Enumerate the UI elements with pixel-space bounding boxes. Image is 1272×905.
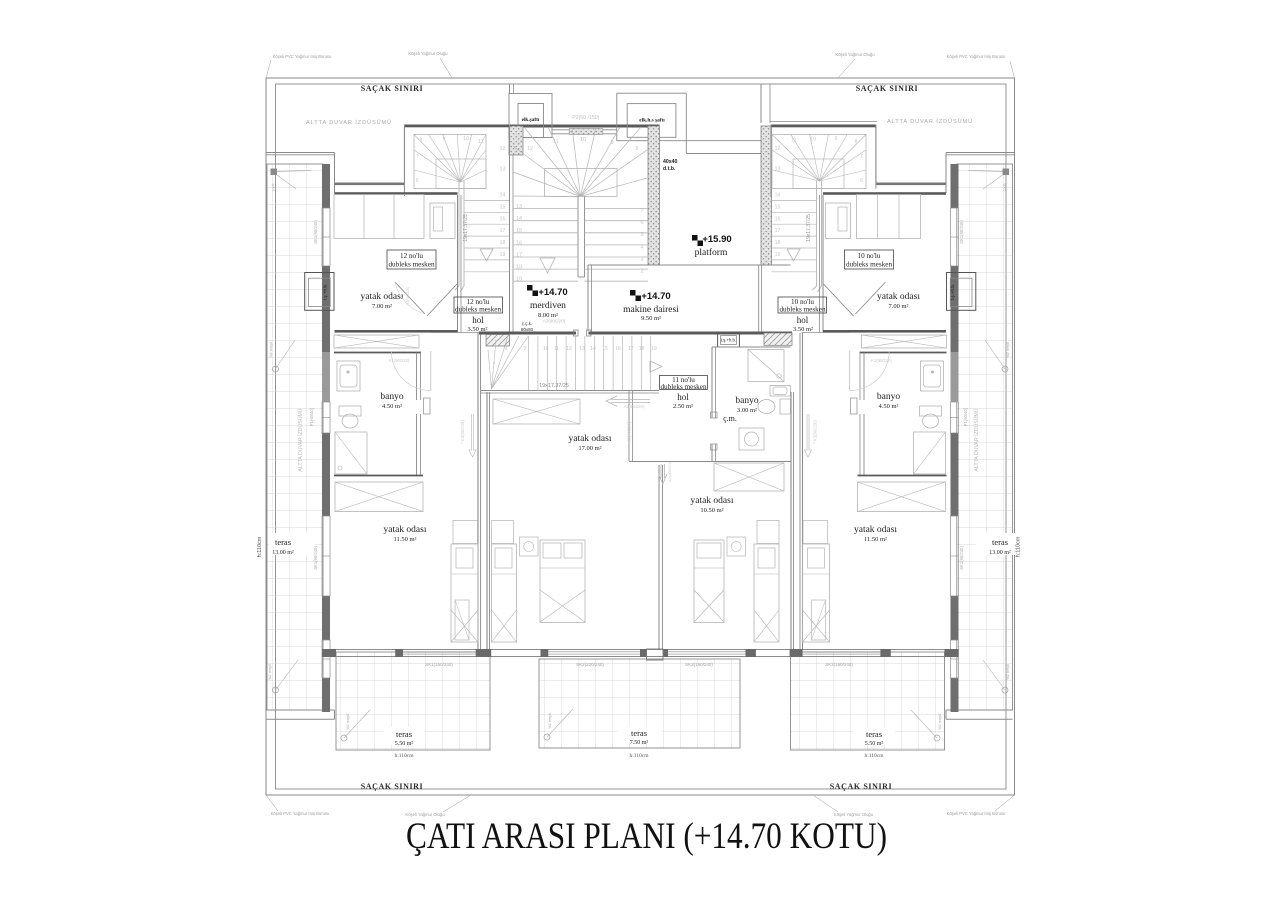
svg-text:12: 12 (775, 146, 781, 152)
svg-text:P1(60/40): P1(60/40) (309, 407, 314, 426)
svg-text:12: 12 (500, 146, 506, 152)
svg-text:ÇATI ARASI PLANI (+14.70 KO: ÇATI ARASI PLANI (+14.70 KOTU) (406, 816, 887, 857)
svg-text:16: 16 (500, 216, 506, 222)
svg-text:2.50 m²: 2.50 m² (673, 403, 693, 410)
svg-text:13: 13 (579, 346, 585, 352)
svg-text:Köşeli PVC Yağmur İniş Borusu: Köşeli PVC Yağmur İniş Borusu (273, 54, 332, 59)
svg-text:teras: teras (631, 728, 647, 738)
svg-text:6: 6 (416, 178, 419, 184)
svg-text:SAÇAK SINIRI: SAÇAK SINIRI (361, 84, 424, 93)
svg-text:16: 16 (775, 216, 781, 222)
svg-text:%2 meyil: %2 meyil (938, 714, 942, 730)
svg-text:yatak odası: yatak odası (568, 434, 611, 444)
svg-text:hol: hol (472, 315, 484, 325)
svg-text:11: 11 (791, 138, 796, 144)
svg-text:12: 12 (527, 146, 533, 152)
svg-text:11.50 m²: 11.50 m² (393, 536, 416, 543)
svg-text:%2 meyil: %2 meyil (346, 714, 350, 730)
svg-text:15: 15 (775, 204, 781, 210)
svg-text:A2(80/220): A2(80/220) (667, 461, 672, 481)
svg-text:10: 10 (543, 346, 549, 352)
svg-text:A2(80/220): A2(80/220) (624, 404, 645, 409)
svg-text:t.ş.+h.b.: t.ş.+h.b. (721, 338, 736, 343)
svg-text:19: 19 (775, 252, 781, 258)
svg-text:* K3(90/220): * K3(90/220) (460, 420, 465, 444)
svg-text:4.50 m²: 4.50 m² (878, 403, 898, 410)
svg-text:14: 14 (590, 346, 596, 352)
svg-text:9: 9 (835, 136, 838, 142)
svg-text:h:110cm: h:110cm (257, 536, 263, 557)
svg-text:5.50 m²: 5.50 m² (865, 741, 884, 747)
svg-text:3: 3 (640, 256, 643, 262)
svg-text:7.00 m²: 7.00 m² (372, 303, 392, 310)
svg-text:Köşeli Yağmur Oluğu: Köşeli Yağmur Oluğu (835, 52, 875, 57)
svg-text:4: 4 (640, 244, 643, 250)
svg-text:banyo: banyo (877, 392, 900, 402)
svg-text:platform: platform (695, 247, 728, 258)
svg-text:10 no'lu: 10 no'lu (857, 252, 880, 260)
svg-text:13.00 m²: 13.00 m² (989, 550, 1011, 556)
svg-text:14: 14 (516, 216, 522, 222)
svg-text:SK1(90/240): SK1(90/240) (313, 220, 318, 244)
svg-text:9: 9 (610, 140, 613, 146)
svg-text:7: 7 (493, 362, 496, 368)
svg-text:Köşeli Yağmur Oluğu: Köşeli Yağmur Oluğu (408, 51, 448, 56)
svg-text:13.00 m²: 13.00 m² (272, 550, 294, 556)
svg-text:K2(90/220): K2(90/220) (627, 421, 632, 442)
svg-text:ALTTA DUVAR İZDÜSÜMÜ: ALTTA DUVAR İZDÜSÜMÜ (297, 408, 304, 471)
svg-text:6: 6 (640, 220, 643, 226)
svg-text:ç.y.b.: ç.y.b. (1003, 183, 1007, 192)
svg-text:17: 17 (628, 346, 634, 352)
svg-text:11.50 m²: 11.50 m² (864, 536, 887, 543)
svg-text:18: 18 (639, 346, 645, 352)
svg-text:SK1(90/240): SK1(90/240) (959, 546, 964, 570)
svg-text:hol: hol (677, 392, 689, 402)
svg-text:19x17.37/25: 19x17.37/25 (806, 214, 812, 242)
svg-text:teras: teras (396, 729, 412, 739)
svg-text:19x17.37/25: 19x17.37/25 (463, 214, 469, 242)
svg-text:ALTTA DUVAR İZDÜSÜMÜ: ALTTA DUVAR İZDÜSÜMÜ (973, 408, 980, 471)
svg-text:SK2(220/240): SK2(220/240) (576, 662, 604, 667)
svg-text:SK1(90/240): SK1(90/240) (959, 220, 964, 244)
svg-text:10: 10 (580, 137, 586, 143)
svg-text:19: 19 (500, 252, 506, 258)
svg-text:16: 16 (615, 346, 621, 352)
svg-text:8: 8 (855, 139, 858, 145)
svg-text:ALTTA DUVAR İZDÜSÜMÜ: ALTTA DUVAR İZDÜSÜMÜ (887, 118, 973, 125)
svg-text:8: 8 (505, 346, 508, 352)
svg-text:SAÇAK SINIRI: SAÇAK SINIRI (856, 84, 919, 93)
svg-text:yatak odası: yatak odası (360, 292, 403, 302)
svg-text:dubleks mesken: dubleks mesken (388, 261, 435, 269)
svg-text:dubleks mesken: dubleks mesken (455, 306, 502, 314)
svg-text:banyo: banyo (735, 396, 758, 406)
svg-text:11: 11 (553, 139, 559, 145)
svg-text:9.50 m²: 9.50 m² (641, 315, 661, 322)
svg-text:9: 9 (443, 137, 446, 143)
svg-text:19x17.37/25: 19x17.37/25 (539, 383, 569, 389)
svg-text:teras: teras (992, 537, 1008, 547)
svg-text:t.ş.+h.b.: t.ş.+h.b. (323, 284, 328, 300)
svg-text:3.00 m²: 3.00 m² (737, 407, 757, 414)
svg-text:10: 10 (463, 136, 469, 142)
svg-text:teras: teras (866, 729, 882, 739)
svg-text:18: 18 (500, 240, 506, 246)
svg-text:4.50 m²: 4.50 m² (382, 403, 402, 410)
svg-text:15: 15 (500, 204, 506, 210)
svg-text:A3(90/220): A3(90/220) (543, 319, 566, 324)
svg-text:%2 meyil: %2 meyil (1006, 664, 1010, 680)
svg-text:12: 12 (566, 346, 572, 352)
svg-text:5: 5 (640, 232, 643, 238)
svg-text:10: 10 (810, 137, 816, 143)
svg-text:+15.90: +15.90 (702, 234, 731, 245)
svg-text:K1(90/220): K1(90/220) (871, 358, 892, 363)
svg-text:10.50 m²: 10.50 m² (700, 507, 723, 514)
svg-text:SK1(90/240): SK1(90/240) (313, 546, 318, 570)
svg-text:19: 19 (651, 346, 657, 352)
svg-text:5.50 m²: 5.50 m² (395, 741, 414, 747)
svg-text:+14.70: +14.70 (538, 287, 567, 298)
svg-text:+14.70: +14.70 (641, 291, 670, 302)
svg-text:6: 6 (860, 178, 863, 184)
svg-text:8: 8 (635, 146, 638, 152)
svg-text:SAÇAK SINIRI: SAÇAK SINIRI (830, 782, 893, 791)
svg-text:P2(60 /150): P2(60 /150) (572, 115, 599, 121)
svg-text:yatak odası: yatak odası (877, 292, 920, 302)
svg-text:SK3(160/240): SK3(160/240) (825, 662, 853, 667)
svg-text:7: 7 (640, 208, 643, 214)
svg-text:17: 17 (500, 228, 506, 234)
svg-text:elk.h.s şaftı: elk.h.s şaftı (639, 118, 665, 124)
svg-text:14: 14 (500, 193, 506, 199)
svg-text:dubleks mesken: dubleks mesken (660, 383, 707, 391)
svg-text:dubleks mesken: dubleks mesken (779, 306, 826, 314)
svg-text:17: 17 (516, 252, 522, 258)
svg-text:SK1(160/240): SK1(160/240) (425, 662, 453, 667)
svg-text:40x40: 40x40 (663, 159, 678, 165)
svg-text:%2 meyil: %2 meyil (268, 664, 272, 680)
svg-text:80x80: 80x80 (521, 327, 534, 332)
svg-text:3.50 m²: 3.50 m² (793, 326, 813, 333)
svg-text:teras: teras (275, 537, 291, 547)
svg-text:A1(90/220): A1(90/220) (405, 286, 410, 305)
svg-text:18: 18 (516, 265, 522, 271)
svg-text:h:110cm: h:110cm (394, 753, 414, 759)
svg-text:2: 2 (640, 269, 643, 275)
svg-text:ALTTA DUVAR İZDÜSÜMÜ: ALTTA DUVAR İZDÜSÜMÜ (306, 119, 392, 126)
svg-text:12 no'lu: 12 no'lu (400, 252, 423, 260)
svg-text:hol: hol (797, 315, 809, 325)
svg-text:ç.m.: ç.m. (723, 414, 737, 423)
svg-text:13: 13 (775, 167, 781, 173)
svg-text:SK3(160/240): SK3(160/240) (685, 662, 713, 667)
svg-text:9: 9 (524, 346, 527, 352)
svg-text:Köşeli PVC Yağmur İniş Borusu: Köşeli PVC Yağmur İniş Borusu (271, 811, 330, 816)
svg-text:h:110cm: h:110cm (629, 753, 649, 759)
svg-text:* K3(90/220): * K3(90/220) (813, 420, 818, 444)
svg-text:K1(90/220): K1(90/220) (389, 358, 410, 363)
svg-text:P1(60/40): P1(60/40) (963, 407, 968, 426)
svg-text:7: 7 (860, 154, 863, 160)
svg-text:%2 meyil: %2 meyil (269, 342, 273, 358)
svg-text:elk.şaftı: elk.şaftı (522, 117, 540, 123)
svg-text:7.00 m²: 7.00 m² (888, 303, 908, 310)
svg-text:h:110cm: h:110cm (1016, 536, 1022, 557)
svg-text:16: 16 (516, 240, 522, 246)
svg-text:dubleks mesken: dubleks mesken (846, 261, 893, 269)
svg-text:%2 meyil: %2 meyil (1006, 342, 1010, 358)
svg-text:yatak odası: yatak odası (690, 496, 733, 506)
svg-text:merdiven: merdiven (530, 301, 566, 311)
svg-text:h:110cm: h:110cm (864, 753, 884, 759)
svg-text:14: 14 (775, 193, 781, 199)
svg-text:Köşeli PVC Yağmur İniş Borusu: Köşeli PVC Yağmur İniş Borusu (947, 811, 1006, 816)
svg-text:Köşeli PVC Yağmur İniş Borusu: Köşeli PVC Yağmur İniş Borusu (947, 54, 1006, 59)
svg-text:8: 8 (420, 138, 423, 144)
svg-text:banyo: banyo (380, 392, 403, 402)
svg-text:15: 15 (602, 346, 608, 352)
svg-text:SAÇAK SINIRI: SAÇAK SINIRI (361, 782, 424, 791)
svg-text:d.t.b.: d.t.b. (663, 166, 676, 172)
svg-text:18: 18 (775, 240, 781, 246)
svg-text:t.ş.+h.b.: t.ş.+h.b. (950, 284, 955, 300)
svg-text:13: 13 (500, 167, 506, 173)
svg-text:15: 15 (516, 228, 522, 234)
svg-text:ç.y.b.: ç.y.b. (271, 183, 275, 192)
svg-text:11: 11 (478, 139, 483, 145)
svg-text:17: 17 (775, 228, 781, 234)
svg-text:6: 6 (493, 381, 496, 387)
svg-text:7.50 m²: 7.50 m² (630, 740, 649, 746)
svg-text:yatak odası: yatak odası (383, 525, 426, 535)
svg-text:11: 11 (554, 346, 559, 352)
svg-text:yatak odası: yatak odası (854, 525, 897, 535)
svg-text:7: 7 (416, 154, 419, 160)
svg-text:makine dairesi: makine dairesi (623, 305, 679, 315)
svg-text:ç.ç.k.: ç.ç.k. (522, 321, 533, 326)
svg-text:17.00 m²: 17.00 m² (578, 445, 601, 452)
svg-text:13: 13 (516, 204, 522, 210)
svg-text:19: 19 (516, 277, 522, 283)
svg-text:%2 meyil: %2 meyil (548, 713, 552, 729)
